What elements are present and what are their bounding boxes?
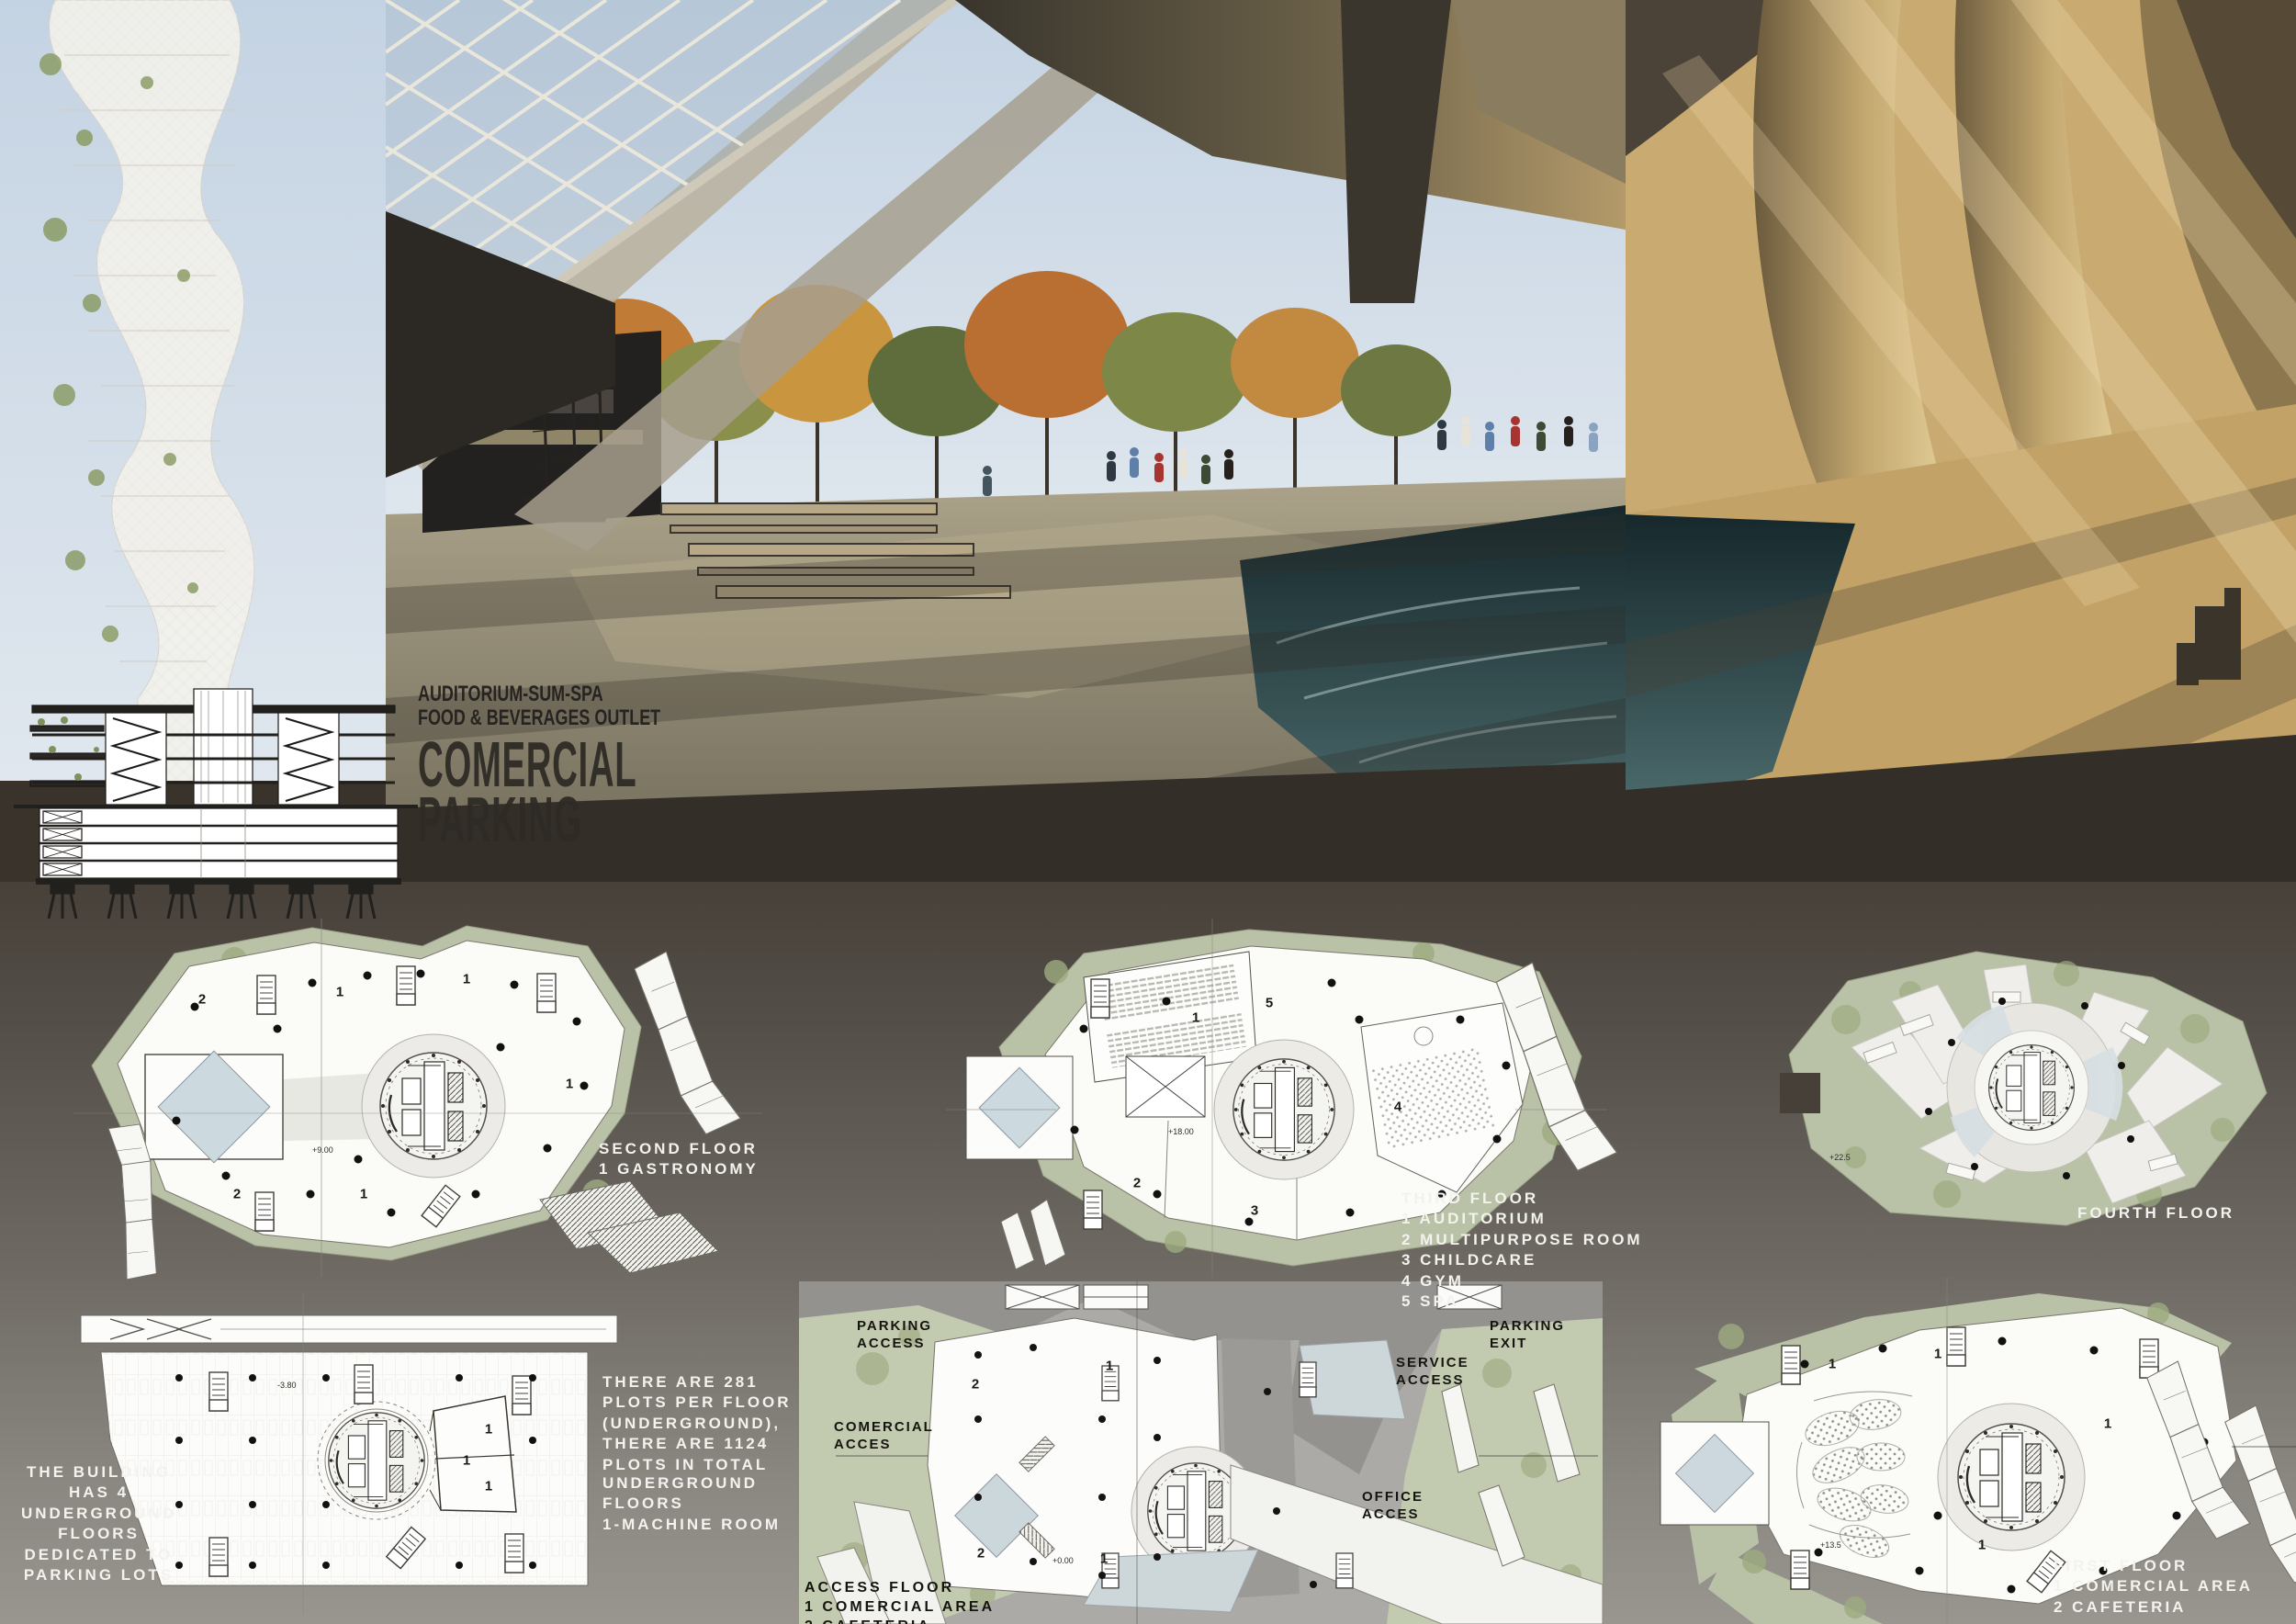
fourth-floor-caption: FOURTH FLOOR <box>2077 1203 2234 1224</box>
second-floor-caption: SECOND FLOOR 1 GASTRONOMY <box>599 1139 759 1180</box>
second-floor-plan: 211121+9.00 <box>37 919 771 1277</box>
vertical-core <box>1148 1463 1244 1559</box>
third-floor-caption: THIRD FLOOR 1 AUDITORIUM 2 MULTIPURPOSE … <box>1401 1189 1643 1313</box>
vertical-core <box>329 1413 424 1508</box>
edge-notch <box>1780 1073 1820 1113</box>
vertical-core <box>1958 1424 2065 1530</box>
vertical-core <box>1989 1045 2075 1131</box>
title-line-2: PARKING <box>418 790 636 852</box>
hatched-ramp <box>540 1181 718 1273</box>
fourth-floor-plan: +22.5 <box>1763 937 2296 1240</box>
machine-rooms <box>433 1396 516 1512</box>
plots-note: THERE ARE 281 PLOTS PER FLOOR (UNDERGROU… <box>602 1372 792 1475</box>
access-floor-plan: PARKING ACCESSCOMERCIAL ACCESSERVICE ACC… <box>799 1281 1603 1624</box>
ramp-structure <box>635 952 740 1134</box>
vertical-core <box>1233 1059 1334 1160</box>
columns-render <box>1626 0 2296 882</box>
ramp-fragment <box>1001 1212 1034 1269</box>
access-floor-caption: ACCESS FLOOR 1 COMERCIAL AREA 2 CAFETERI… <box>805 1578 995 1624</box>
vertical-core <box>380 1053 487 1159</box>
subtitle-line-1: AUDITORIUM-SUM-SPA <box>418 682 693 706</box>
underground-note: UNDERGROUND FLOORS 1-MACHINE ROOM <box>602 1473 781 1535</box>
ramp-fragment <box>1030 1200 1065 1266</box>
presentation-board: AUDITORIUM-SUM-SPA FOOD & BEVERAGES OUTL… <box>0 0 2296 1624</box>
title-block: AUDITORIUM-SUM-SPA FOOD & BEVERAGES OUTL… <box>418 682 771 846</box>
first-floor-caption: FIRST FLOOR 1 COMERCIAL AREA 2 CAFETERIA <box>2054 1556 2253 1618</box>
building-note: THE BUILDING HAS 4 UNDERGROUND FLOORS DE… <box>0 1462 197 1586</box>
subtitle-line-2: FOOD & BEVERAGES OUTLET <box>418 705 693 730</box>
building-section-drawing <box>14 682 418 920</box>
